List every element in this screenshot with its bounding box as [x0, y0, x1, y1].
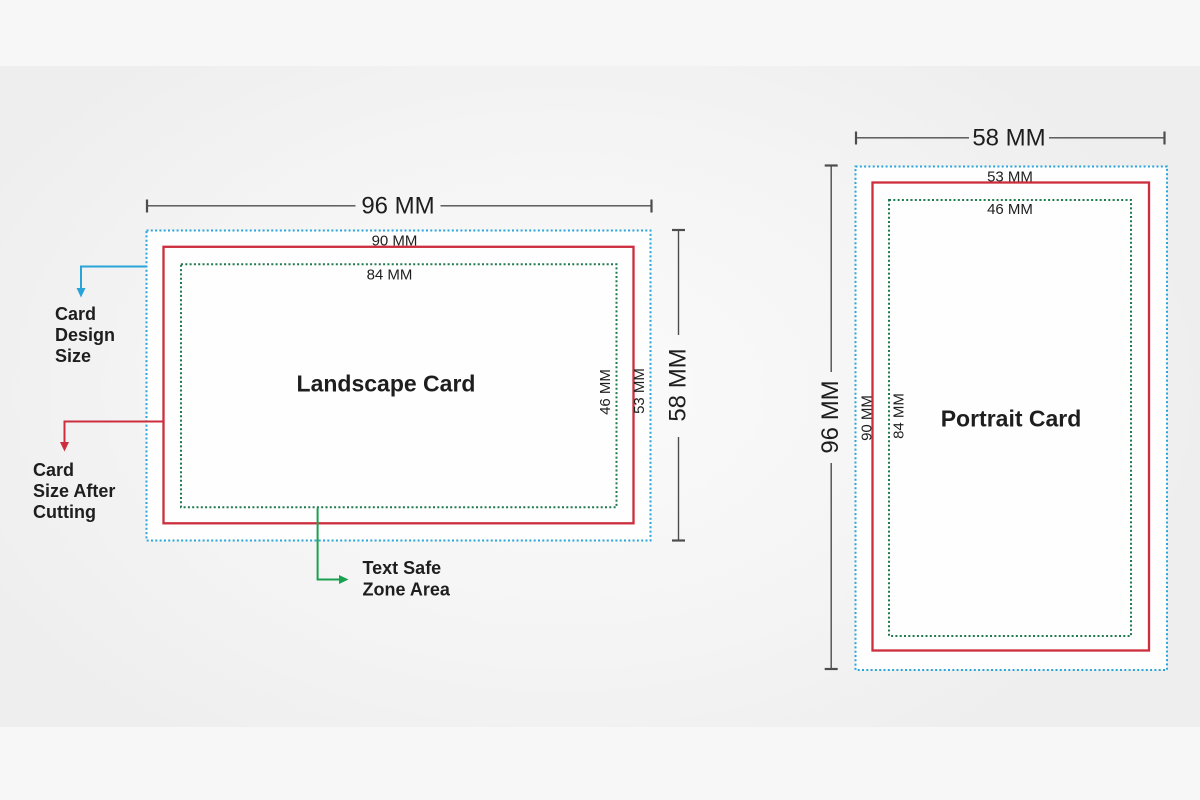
- svg-text:46 MM: 46 MM: [597, 369, 614, 415]
- svg-text:58 MM: 58 MM: [665, 348, 692, 421]
- svg-text:46 MM: 46 MM: [987, 201, 1033, 218]
- svg-text:96 MM: 96 MM: [361, 193, 434, 220]
- svg-text:Size After: Size After: [33, 481, 115, 501]
- svg-text:Design: Design: [55, 325, 115, 345]
- svg-text:Portrait Card: Portrait Card: [941, 406, 1082, 432]
- svg-text:Text Safe: Text Safe: [363, 558, 442, 578]
- svg-text:Card: Card: [33, 460, 74, 480]
- svg-text:Size: Size: [55, 346, 91, 366]
- svg-text:90 MM: 90 MM: [858, 395, 875, 441]
- svg-text:84 MM: 84 MM: [890, 393, 907, 439]
- svg-text:Cutting: Cutting: [33, 502, 96, 522]
- svg-text:90 MM: 90 MM: [372, 232, 418, 249]
- svg-text:53 MM: 53 MM: [987, 169, 1033, 186]
- svg-text:96 MM: 96 MM: [817, 380, 844, 453]
- svg-text:Landscape Card: Landscape Card: [297, 370, 476, 396]
- svg-text:Card: Card: [55, 304, 96, 324]
- svg-text:Zone Area: Zone Area: [363, 580, 451, 600]
- svg-text:58 MM: 58 MM: [972, 125, 1045, 152]
- svg-text:53 MM: 53 MM: [631, 368, 648, 414]
- svg-text:84 MM: 84 MM: [367, 267, 413, 284]
